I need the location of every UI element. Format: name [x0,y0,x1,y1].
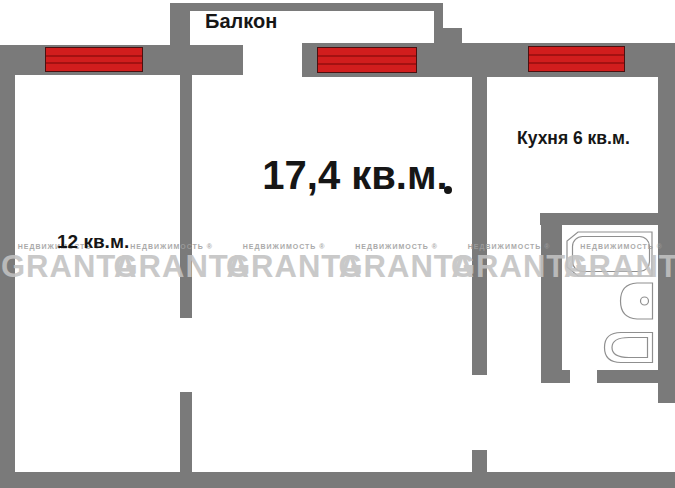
toilet-icon [605,333,653,363]
floor-plan: Балкон 17,4 кв.м. 12 кв.м. Кухня 6 кв.м.… [0,0,675,488]
sink-icon [621,283,653,319]
balcony-label: Балкон [205,10,277,32]
bathtub-icon [567,232,652,276]
kitchen-area-label: Кухня 6 кв.м. [517,129,630,148]
bedroom-area-label: 12 кв.м. [57,232,129,253]
main-room-area-label: 17,4 кв.м. [250,153,460,197]
